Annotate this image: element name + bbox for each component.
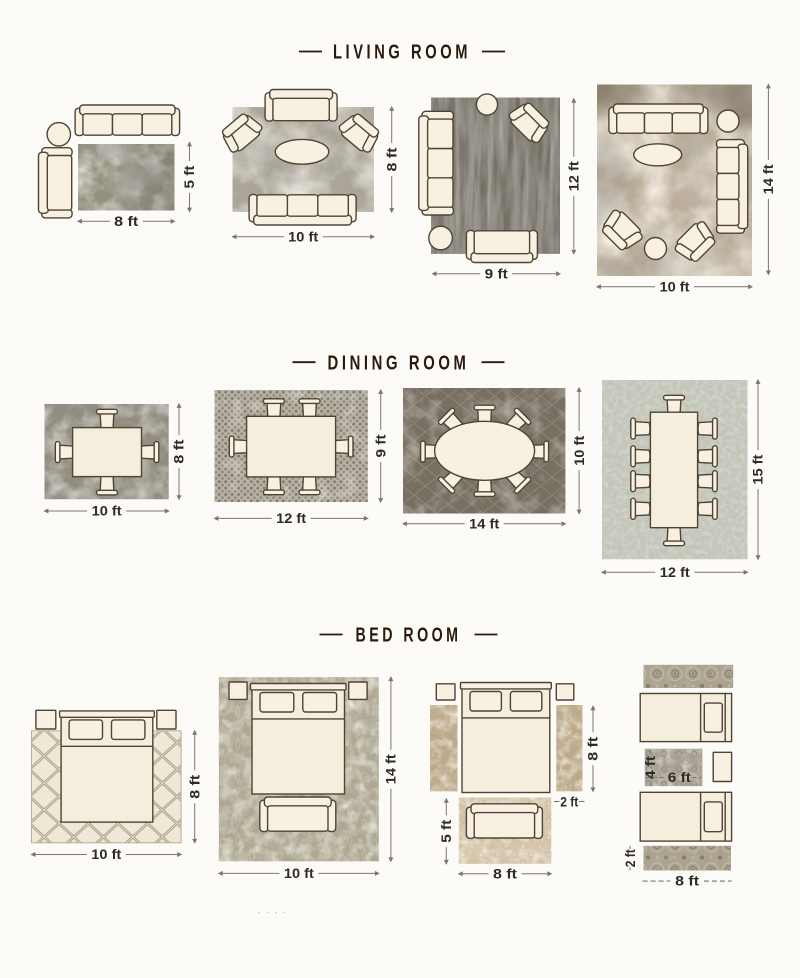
svg-text:10 ft: 10 ft [284,866,315,881]
svg-text:5 ft: 5 ft [439,819,454,843]
svg-text:10 ft: 10 ft [288,230,319,245]
svg-text:12 ft: 12 ft [660,565,691,580]
svg-text:10 ft: 10 ft [92,504,123,519]
svg-text:10 ft: 10 ft [572,435,587,466]
svg-text:14 ft: 14 ft [384,754,399,785]
svg-text:LIVING ROOM: LIVING ROOM [333,41,471,64]
svg-text:8 ft: 8 ft [172,439,187,464]
svg-text:2 ft: 2 ft [623,849,638,867]
svg-text:14 ft: 14 ft [469,517,500,532]
svg-text:2 ft: 2 ft [560,794,578,809]
svg-text:BED ROOM: BED ROOM [356,624,462,647]
svg-text:8 ft: 8 ft [187,774,202,799]
svg-text:10 ft: 10 ft [91,847,122,862]
svg-text:6 ft: 6 ft [668,770,692,785]
svg-text:10 ft: 10 ft [660,280,691,295]
svg-text:4 ft: 4 ft [643,755,658,779]
svg-text:8 ft: 8 ft [675,874,700,889]
svg-text:5 ft: 5 ft [182,165,197,189]
svg-text:12 ft: 12 ft [567,161,582,192]
svg-text:12 ft: 12 ft [276,511,307,526]
svg-text:15 ft: 15 ft [751,454,766,485]
svg-text:8 ft: 8 ft [586,736,601,761]
svg-text:9 ft: 9 ft [373,434,388,458]
svg-text:8 ft: 8 ft [384,147,399,172]
svg-text:8 ft: 8 ft [114,214,139,229]
svg-text:8 ft: 8 ft [493,867,518,882]
svg-text:14 ft: 14 ft [761,164,776,195]
svg-text:9 ft: 9 ft [485,267,509,282]
svg-text:DINING ROOM: DINING ROOM [328,351,470,374]
